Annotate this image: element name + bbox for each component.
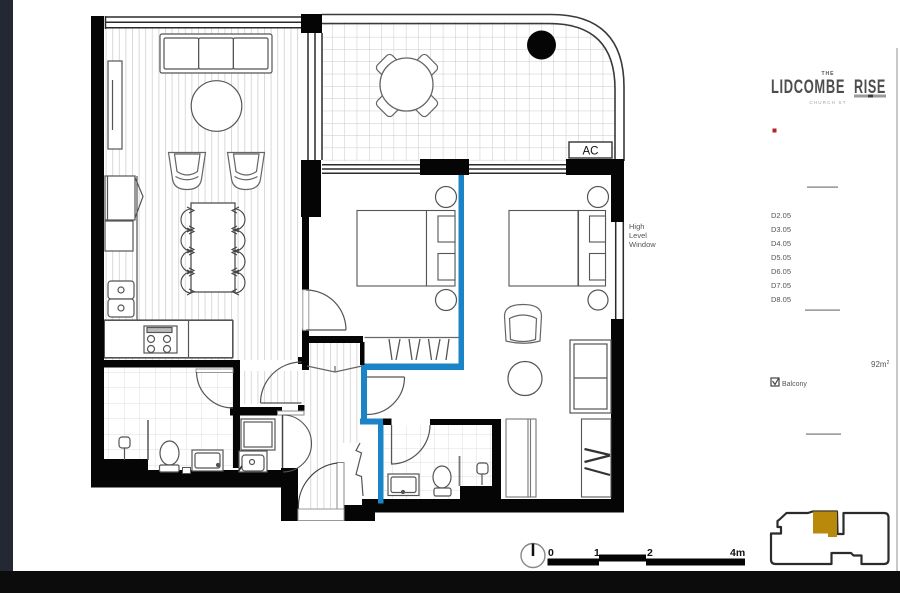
svg-text:Level: Level bbox=[629, 231, 647, 240]
svg-text:AC: AC bbox=[583, 146, 599, 158]
svg-text:RISE: RISE bbox=[854, 75, 886, 97]
svg-text:D4.05: D4.05 bbox=[771, 239, 791, 248]
svg-text:D2.05: D2.05 bbox=[771, 211, 791, 220]
svg-text:2: 2 bbox=[647, 547, 653, 559]
svg-text:4m: 4m bbox=[730, 547, 745, 559]
svg-text:D3.05: D3.05 bbox=[771, 225, 791, 234]
svg-text:Balcony: Balcony bbox=[782, 381, 807, 388]
svg-text:D7.05: D7.05 bbox=[771, 281, 791, 290]
svg-text:D6.05: D6.05 bbox=[771, 267, 791, 276]
svg-text:D5.05: D5.05 bbox=[771, 253, 791, 262]
svg-text:0: 0 bbox=[548, 547, 554, 559]
svg-text:Window: Window bbox=[629, 240, 656, 249]
svg-text:D8.05: D8.05 bbox=[771, 295, 791, 304]
svg-text:CHURCH ST: CHURCH ST bbox=[809, 100, 846, 105]
svg-text:High: High bbox=[629, 222, 644, 231]
svg-text:LIDCOMBE: LIDCOMBE bbox=[771, 75, 845, 97]
